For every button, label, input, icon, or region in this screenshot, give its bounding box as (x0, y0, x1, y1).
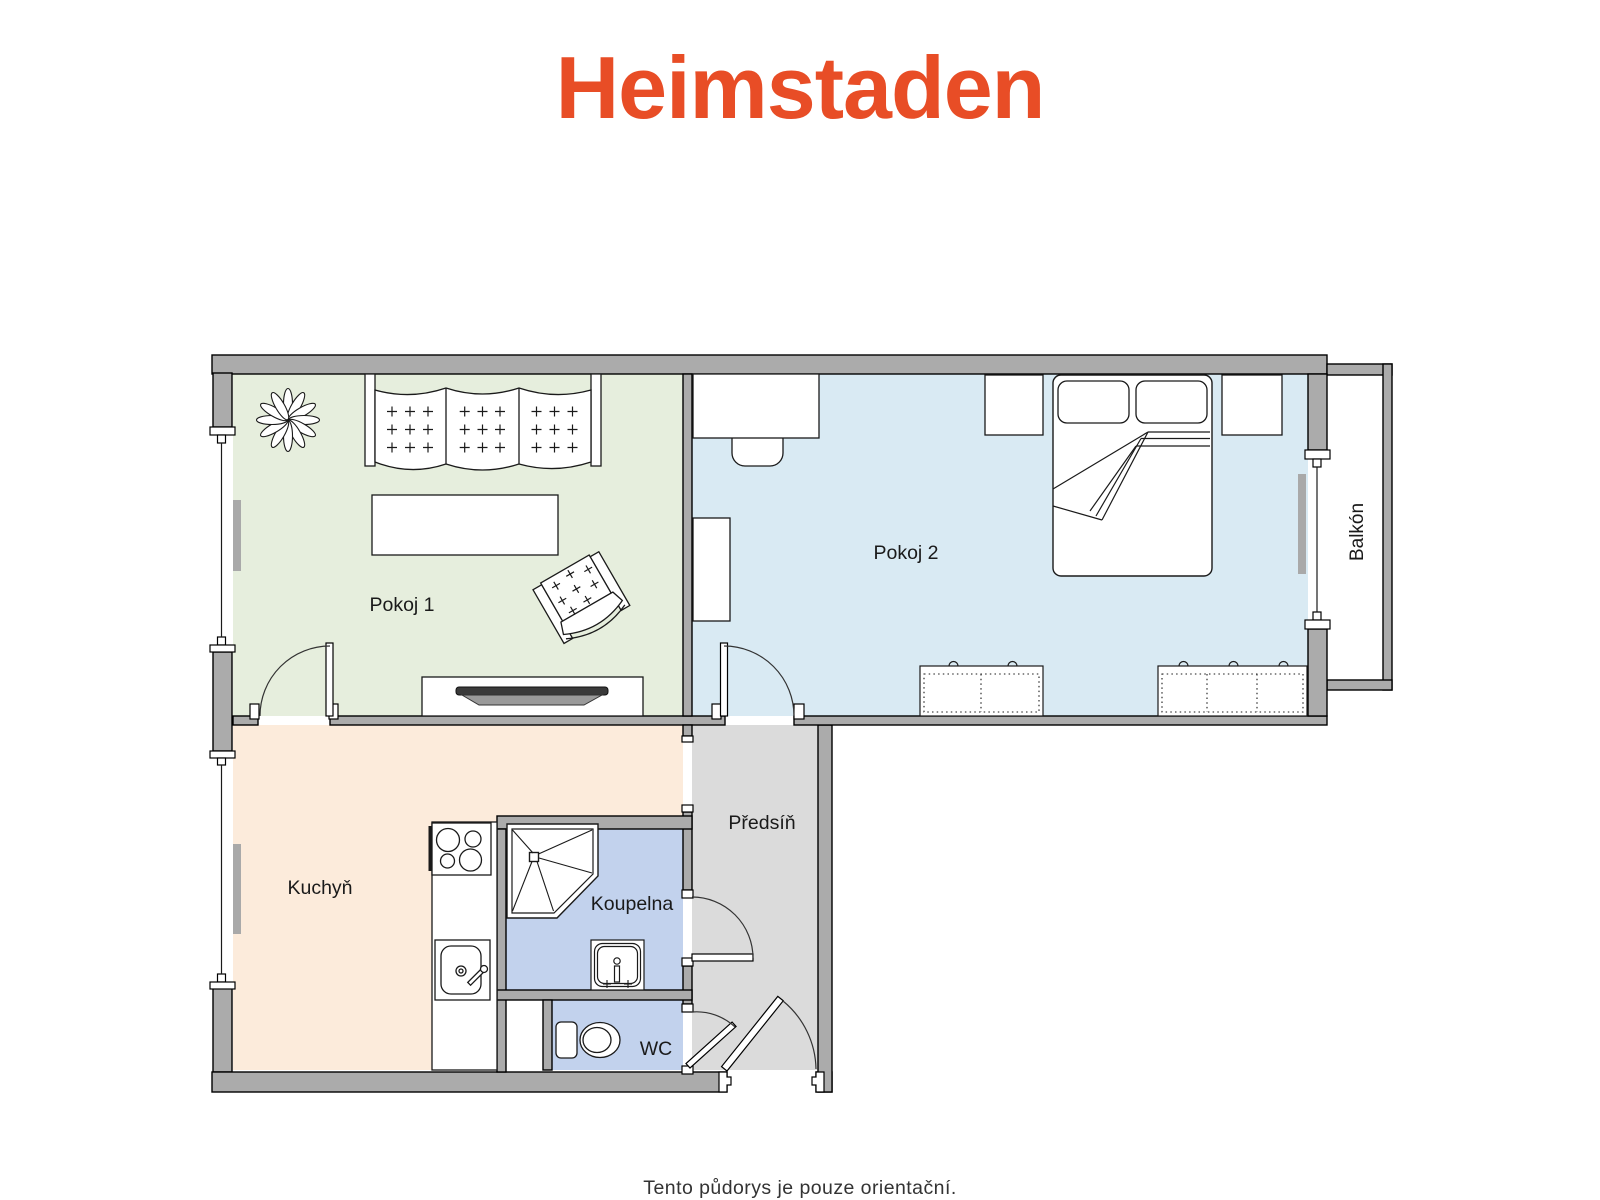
svg-text:Balkón: Balkón (1347, 503, 1368, 561)
svg-text:Tento půdorys je pouze orienta: Tento půdorys je pouze orientační. (643, 1177, 956, 1199)
svg-text:Předsíň: Předsíň (728, 812, 795, 834)
svg-text:WC: WC (640, 1038, 673, 1060)
svg-text:Kuchyň: Kuchyň (287, 877, 352, 899)
svg-text:Heimstaden: Heimstaden (556, 38, 1045, 137)
svg-text:Pokoj 1: Pokoj 1 (369, 594, 434, 616)
svg-text:Pokoj 2: Pokoj 2 (873, 542, 938, 564)
svg-text:Koupelna: Koupelna (591, 893, 674, 915)
